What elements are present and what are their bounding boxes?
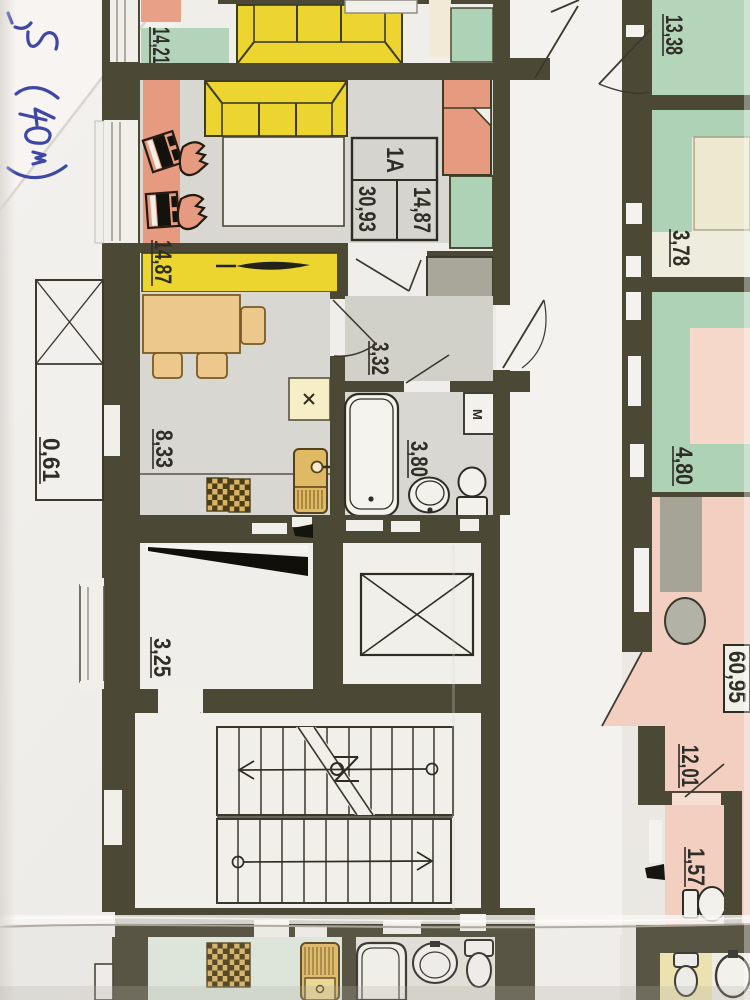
svg-text:8,33: 8,33 [150, 430, 177, 468]
svg-text:13,38: 13,38 [660, 15, 687, 55]
svg-text:4,80: 4,80 [670, 447, 697, 485]
svg-text:3,25: 3,25 [148, 638, 175, 677]
svg-text:12,01: 12,01 [676, 745, 703, 787]
svg-text:1A: 1A [381, 147, 408, 173]
svg-text:0,61: 0,61 [37, 438, 64, 482]
svg-text:14,87: 14,87 [149, 240, 176, 284]
svg-text:3,80: 3,80 [405, 441, 432, 477]
svg-text:30,93: 30,93 [353, 186, 380, 232]
svg-text:3,78: 3,78 [667, 230, 694, 266]
svg-text:14,21: 14,21 [147, 27, 174, 64]
svg-text:1,57: 1,57 [682, 848, 709, 886]
svg-text:14,87: 14,87 [408, 187, 435, 233]
svg-text:M: M [470, 409, 485, 420]
